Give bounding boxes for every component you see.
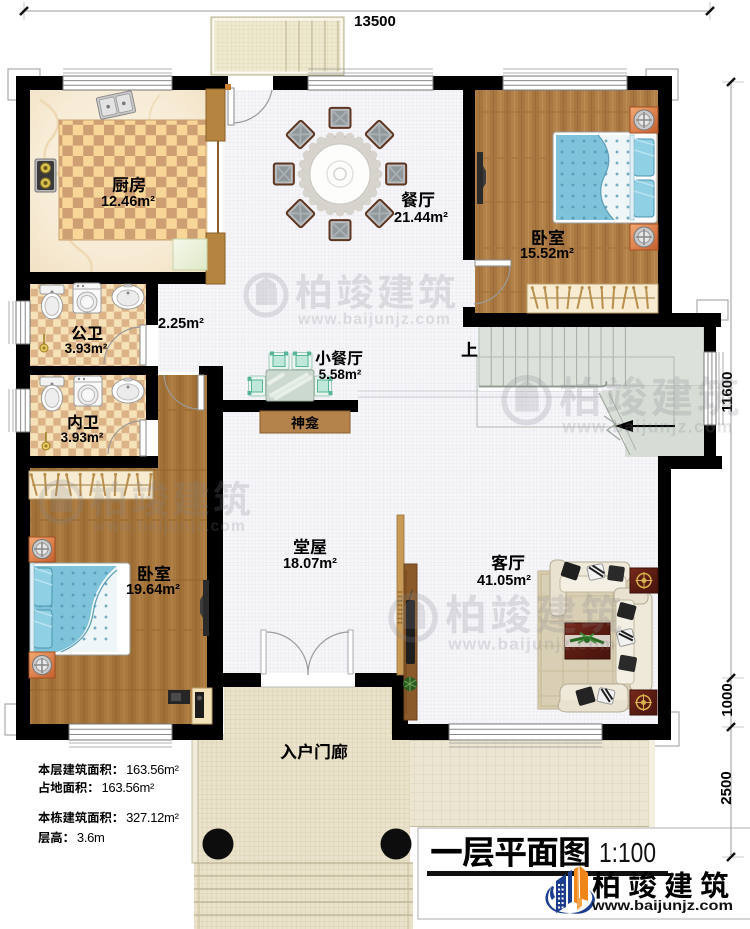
svg-text:41.05m²: 41.05m² <box>477 573 531 589</box>
svg-text:15.52m²: 15.52m² <box>520 246 574 262</box>
svg-text:3.6m: 3.6m <box>77 830 105 845</box>
svg-text:13500: 13500 <box>354 13 396 30</box>
svg-text:2.25m²: 2.25m² <box>158 316 204 332</box>
svg-text:www.baijunjz.com: www.baijunjz.com <box>561 417 733 437</box>
svg-text:2500: 2500 <box>718 771 735 804</box>
svg-text:163.56m²: 163.56m² <box>126 762 179 777</box>
svg-text:163.56m²: 163.56m² <box>102 780 155 795</box>
svg-text:3.93m²: 3.93m² <box>61 430 104 445</box>
svg-text:5.58m²: 5.58m² <box>319 367 362 382</box>
svg-text:1000: 1000 <box>719 683 736 716</box>
svg-text:www.baijunjz.com: www.baijunjz.com <box>92 518 246 535</box>
svg-text:19.64m²: 19.64m² <box>126 582 180 598</box>
svg-text:18.07m²: 18.07m² <box>283 556 337 572</box>
svg-text:1:100: 1:100 <box>599 837 656 868</box>
svg-text:21.44m²: 21.44m² <box>394 210 448 226</box>
svg-text:12.46m²: 12.46m² <box>101 194 155 210</box>
svg-text:www.baijunjz.com: www.baijunjz.com <box>591 897 733 913</box>
svg-text:327.12m²: 327.12m² <box>126 810 179 825</box>
svg-text:3.93m²: 3.93m² <box>65 341 108 356</box>
svg-text:www.baijunjz.com: www.baijunjz.com <box>297 311 451 328</box>
svg-text:www.baijunjz.com: www.baijunjz.com <box>447 635 616 654</box>
